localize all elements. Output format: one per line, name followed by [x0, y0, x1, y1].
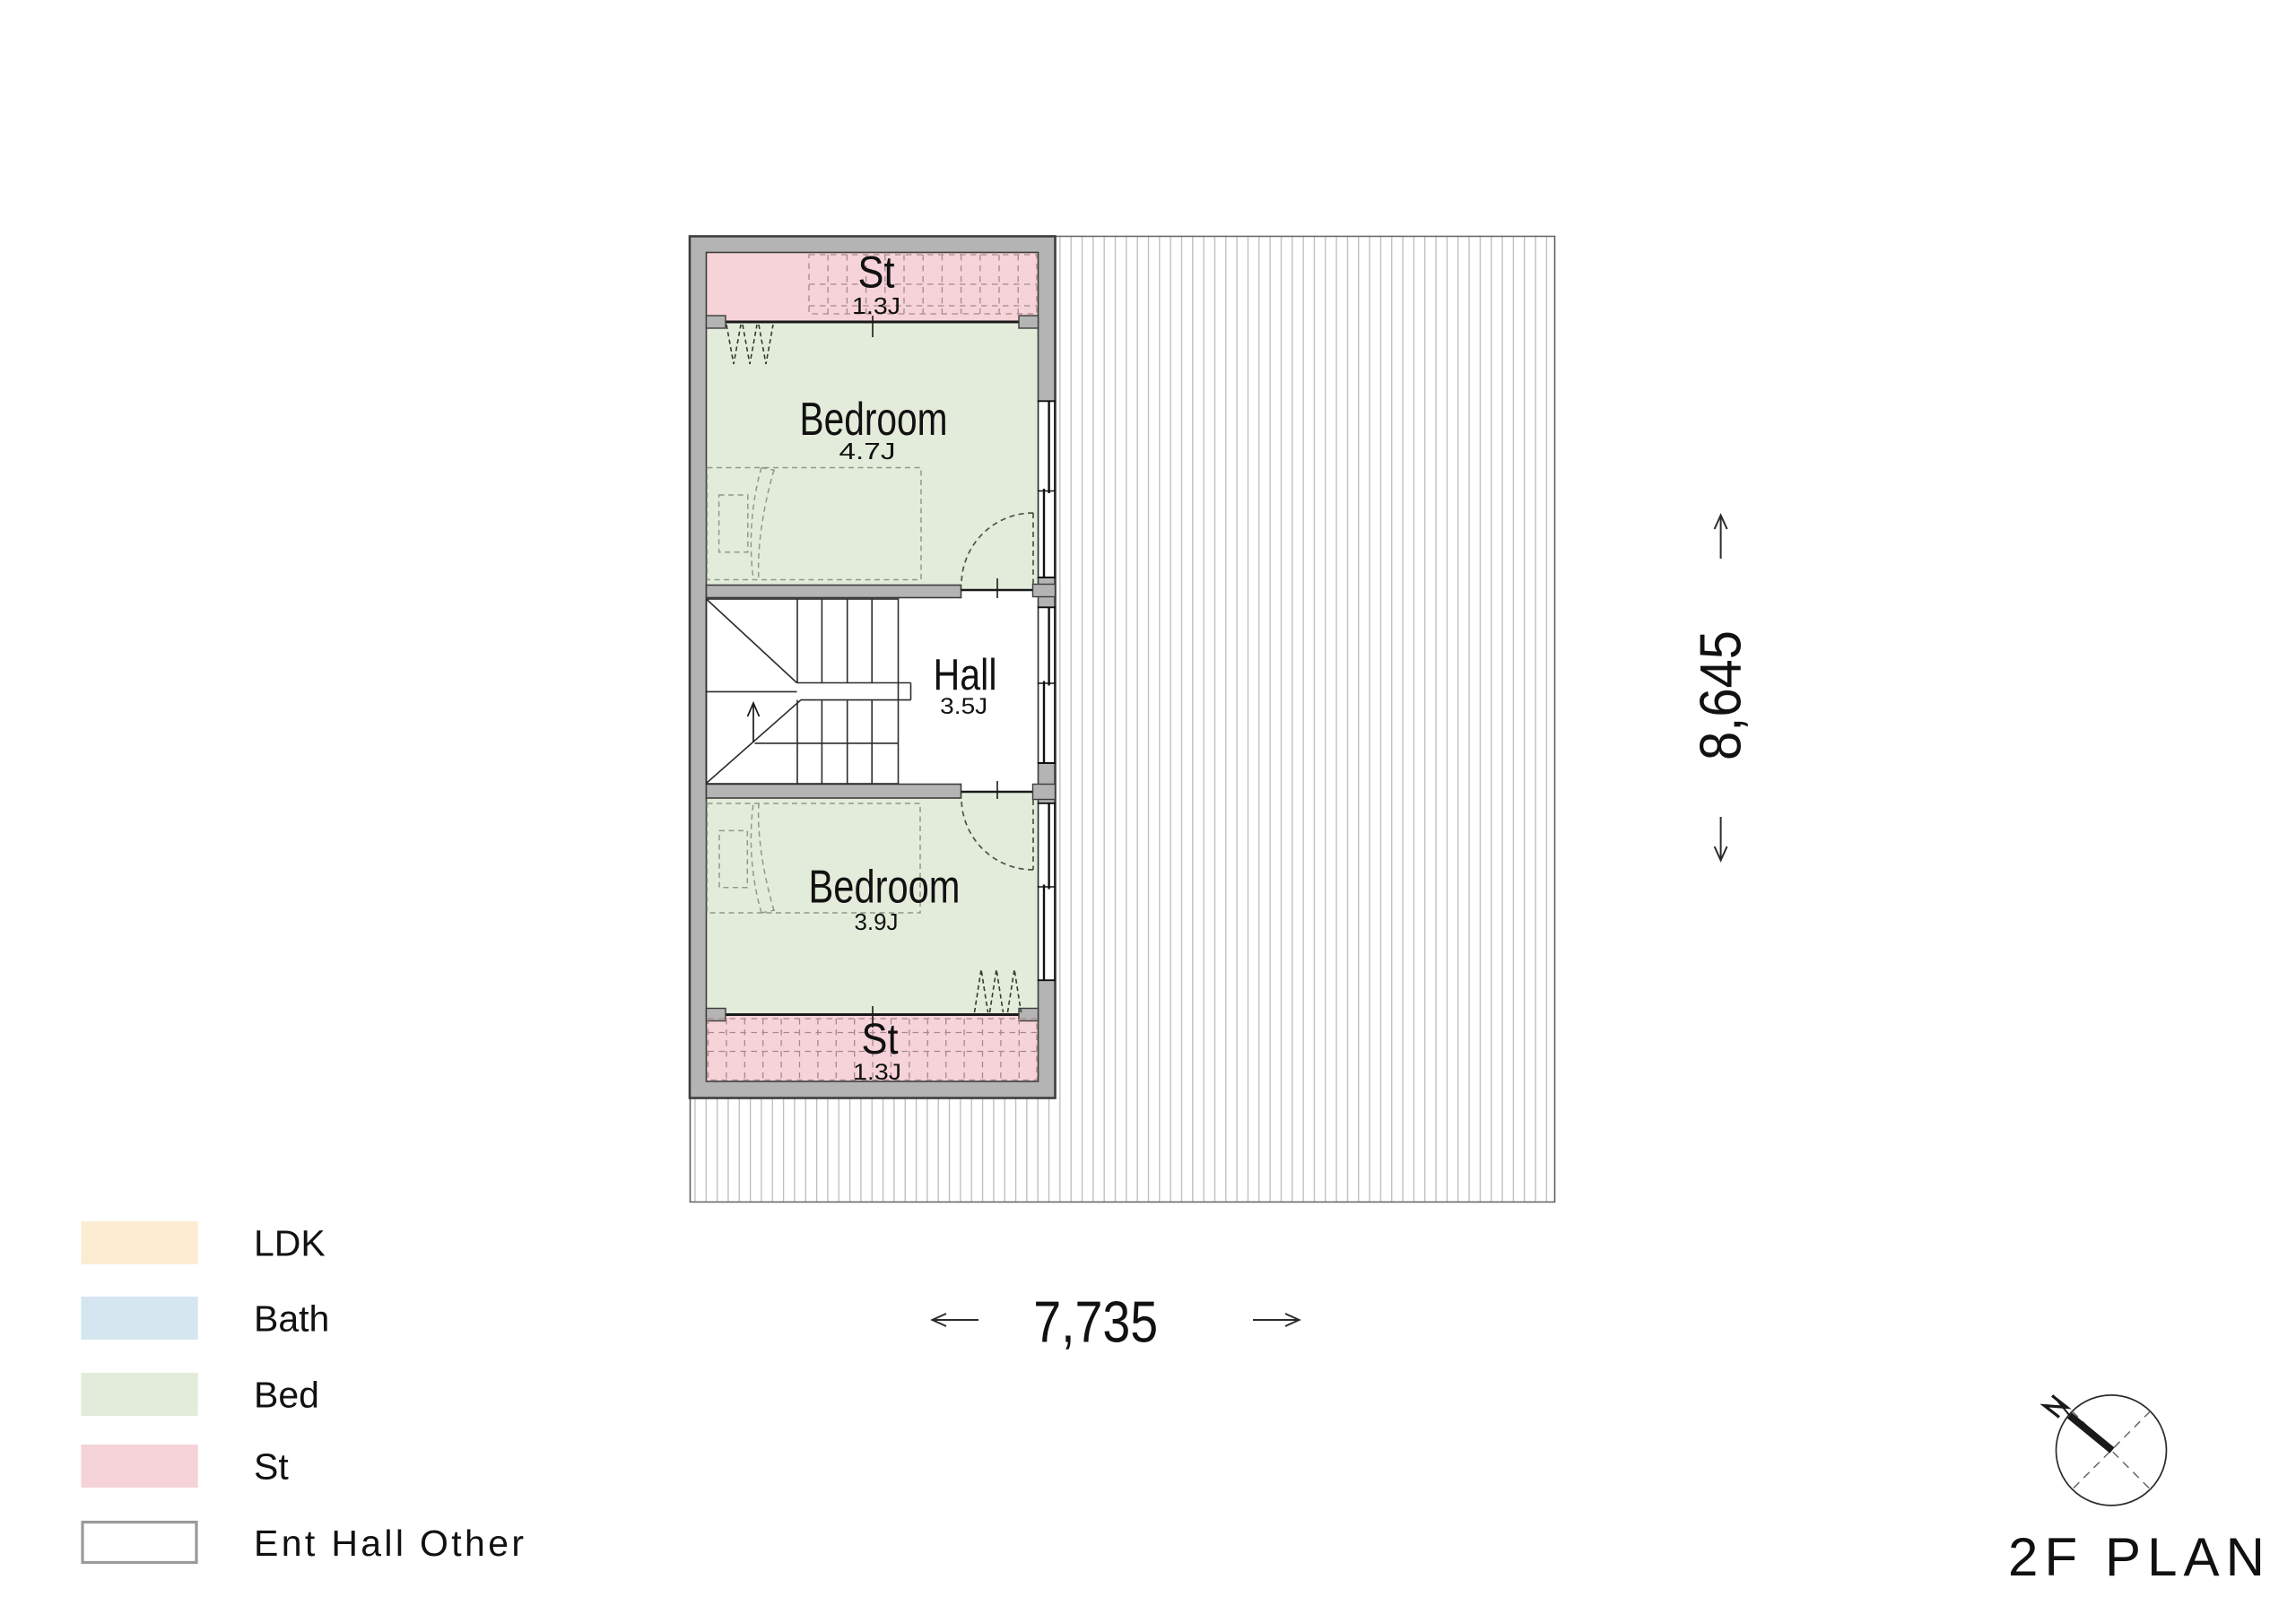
svg-text:4.7J: 4.7J [839, 439, 896, 464]
svg-text:Bedroom: Bedroom [809, 861, 961, 913]
svg-text:St: St [858, 247, 895, 298]
svg-text:Hall: Hall [934, 651, 997, 699]
svg-text:St: St [254, 1446, 289, 1488]
svg-text:Ent Hall Other: Ent Hall Other [254, 1523, 524, 1564]
svg-text:7,735: 7,735 [1033, 1289, 1158, 1355]
svg-text:Bedroom: Bedroom [800, 393, 948, 445]
svg-text:3.9J: 3.9J [855, 910, 899, 935]
svg-text:Bath: Bath [254, 1298, 329, 1340]
svg-text:3.5J: 3.5J [940, 694, 987, 719]
svg-text:LDK: LDK [254, 1223, 326, 1264]
svg-text:8,645: 8,645 [1688, 630, 1753, 760]
svg-text:1.3J: 1.3J [852, 294, 900, 319]
svg-text:2F PLAN: 2F PLAN [2008, 1527, 2265, 1587]
svg-text:Bed: Bed [254, 1375, 319, 1416]
svg-text:St: St [862, 1016, 899, 1063]
svg-text:1.3J: 1.3J [853, 1060, 901, 1085]
